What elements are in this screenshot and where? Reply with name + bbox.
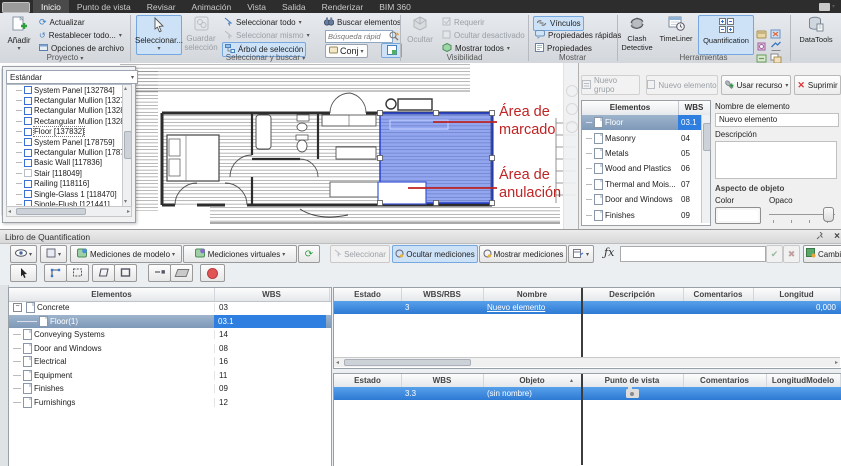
select-all-icon — [224, 17, 233, 28]
item-icon — [594, 133, 603, 144]
item-icon — [39, 316, 48, 327]
tree-row[interactable]: Finishes09 — [9, 382, 331, 396]
tree-row[interactable]: Electrical16 — [9, 355, 331, 369]
erase-markup-button[interactable] — [170, 264, 193, 282]
tree-row-concrete[interactable]: − Concrete 03 — [9, 301, 331, 315]
scrollbar-thumb[interactable] — [703, 123, 711, 151]
column-header-estado[interactable]: Estado — [334, 374, 402, 387]
delete-x-icon: ✕ — [797, 80, 805, 91]
box-icon — [46, 248, 56, 260]
geometry-icon — [24, 117, 32, 125]
select-same-button[interactable]: Seleccionar mismo▾ — [222, 29, 312, 41]
tree-item[interactable]: Single-Glass 1 [118470] — [7, 189, 131, 199]
opacity-slider-thumb[interactable] — [823, 207, 834, 222]
timeliner-button[interactable]: TimeLiner — [657, 15, 695, 53]
require-icon — [442, 17, 451, 28]
geometry-icon — [24, 190, 32, 198]
group-label-proyecto[interactable]: Proyecto ▾ — [0, 53, 130, 63]
sort-ascending-icon: ▴ — [570, 377, 573, 384]
tree-row-floor-selected[interactable]: Floor(1) 03.1 — [9, 315, 331, 329]
scrollbar-thumb[interactable] — [16, 208, 86, 215]
quick-find-input[interactable] — [325, 30, 393, 43]
chevron-down-icon: ▾ — [785, 82, 788, 89]
geometry-icon — [24, 138, 32, 146]
ribbon: Añadir ▾ ⟳ Actualizar ↺ Restablecer todo… — [0, 13, 841, 64]
resource-icon — [724, 79, 734, 91]
polygon-markup-button[interactable] — [66, 264, 89, 282]
change-analysis-icon — [806, 248, 816, 260]
model-takeoff-button[interactable]: Mediciones de modelo▾ — [70, 245, 182, 263]
link-icon — [536, 19, 547, 29]
workbook-tree-header: Elementos WBS — [9, 288, 331, 302]
x-icon: ✖ — [788, 249, 796, 260]
object-appearance-label: Aspecto de objeto — [715, 184, 784, 193]
cursor-icon — [19, 267, 28, 280]
unhide-all-icon — [442, 43, 452, 54]
horizontal-scrollbar[interactable]: ◂▸ — [6, 206, 132, 217]
new-group-button[interactable]: Nuevo grupo — [581, 75, 640, 95]
app-menu-button[interactable] — [2, 2, 30, 13]
hide-cube-icon — [412, 16, 428, 35]
tree-item[interactable]: System Panel [178759] — [7, 137, 131, 147]
datatools-button[interactable]: DataTools — [796, 15, 836, 53]
override-area — [378, 182, 426, 204]
tree-item[interactable]: Basic Wall [117836] — [7, 158, 131, 168]
item-icon — [23, 343, 32, 354]
quantification-icon — [718, 17, 735, 36]
nav-pan-icon[interactable] — [566, 103, 578, 115]
area-markup-icon — [120, 267, 131, 280]
geometry-icon — [24, 169, 32, 177]
polygon-icon — [72, 267, 83, 280]
items-grid-header: Estado WBS/RBS Nombre Descripción Coment… — [334, 288, 841, 302]
selection-tree-panel: Estándar▾ System Panel [132784] Rectangu… — [2, 66, 136, 223]
tree-item[interactable]: Rectangular Mullion [132803] — [7, 106, 131, 116]
refresh-icon: ⟳ — [39, 17, 47, 28]
items-grid: Estado WBS/RBS Nombre Descripción Coment… — [333, 287, 841, 369]
tab-bim360[interactable]: BIM 360 — [371, 0, 419, 13]
tab-revisar[interactable]: Revisar — [139, 0, 184, 13]
color-swatch[interactable] — [715, 207, 761, 224]
chevron-down-icon: ▾ — [299, 19, 302, 26]
item-icon — [594, 148, 603, 159]
column-header-estado[interactable]: Estado — [334, 288, 402, 301]
tree-item[interactable]: Railing [118116] — [7, 179, 131, 189]
reset-icon: ↺ — [39, 31, 46, 40]
pin-icon[interactable] — [816, 232, 824, 242]
group-separator — [790, 15, 791, 61]
catalog-row[interactable]: Wood and Plastics06 — [582, 161, 710, 176]
geometry-icon — [24, 107, 32, 115]
catalog-row[interactable]: Masonry04 — [582, 130, 710, 145]
timeliner-icon — [668, 16, 685, 34]
record-markup-button[interactable] — [200, 264, 225, 282]
tree-item[interactable]: Rectangular Mullion [132812] — [7, 116, 131, 126]
formula-label: ƒx — [604, 246, 614, 259]
catalog-row-selected[interactable]: Floor 03.1 — [582, 115, 710, 130]
collapse-icon[interactable]: − — [13, 303, 22, 312]
scroll-left-arrow[interactable]: ◂ — [336, 359, 339, 367]
area-markup-button[interactable] — [114, 264, 137, 282]
description-field[interactable] — [715, 141, 837, 179]
vertical-scrollbar[interactable] — [701, 115, 710, 223]
nav-orbit-icon[interactable] — [566, 85, 578, 97]
column-header-longitud[interactable]: Longitud — [753, 288, 841, 301]
catalog-table: Elementos WBS Floor 03.1 Masonry04 Metal… — [581, 100, 711, 226]
point-line-icon — [154, 268, 166, 278]
item-icon — [23, 356, 32, 367]
column-header-comentarios[interactable]: Comentarios — [683, 288, 754, 301]
geometry-icon — [24, 97, 32, 105]
steps-grid: Estado WBS Objeto ▴ Punto de vista Comen… — [333, 373, 841, 466]
geometry-icon — [24, 128, 32, 136]
group-label-herramientas[interactable]: Herramientas — [617, 53, 790, 63]
column-header-objeto[interactable]: Objeto — [483, 374, 582, 387]
geometry-icon — [24, 180, 32, 188]
scrollbar-thumb[interactable] — [124, 131, 132, 159]
file-options-icon — [39, 43, 48, 54]
item-icon — [23, 370, 32, 381]
workbook-title: Libro de Quantification — [5, 232, 90, 242]
window-icon — [819, 3, 830, 11]
selection-tree-mode-dropdown[interactable]: Estándar▾ — [6, 70, 138, 84]
require-button[interactable]: Requerir — [440, 16, 487, 28]
group-label-seleccionar-y-buscar[interactable]: Seleccionar y buscar ▾ — [131, 53, 400, 63]
tab-vista[interactable]: Vista — [239, 0, 274, 13]
scrollbar-thumb[interactable] — [344, 359, 471, 366]
horizontal-scrollbar[interactable]: ◂ ▸ — [334, 357, 840, 367]
item-icon — [594, 194, 603, 205]
column-header-wbs[interactable]: WBS — [401, 374, 484, 387]
tab-renderizar[interactable]: Renderizar — [314, 0, 372, 13]
quantification-workbook-panel: Libro de Quantification × ▾ ▾ Mediciones… — [0, 229, 841, 466]
group-label-mostrar[interactable]: Mostrar — [528, 53, 617, 63]
catalog-row[interactable]: Metals05 — [582, 146, 710, 161]
column-header-descripcion[interactable]: Descripción — [581, 288, 684, 301]
formula-input[interactable] — [620, 246, 766, 262]
select-same-icon — [224, 30, 233, 41]
add-button[interactable]: Añadir ▾ — [4, 15, 34, 53]
tab-inicio[interactable]: Inicio — [33, 0, 69, 13]
item-icon — [594, 163, 603, 174]
item-icon — [26, 302, 35, 313]
color-label: Color — [715, 196, 734, 205]
display-mode-dropdown-button[interactable]: ▾ — [40, 245, 67, 263]
tab-punto-de-vista[interactable]: Punto de vista — [69, 0, 139, 13]
record-icon — [207, 268, 218, 279]
select-markup-button[interactable] — [10, 264, 37, 282]
clash-detective-icon — [629, 16, 645, 34]
use-resource-button[interactable]: Usar recurso▾ — [721, 75, 791, 95]
takeoff-settings-dropdown[interactable]: ▾ — [568, 245, 594, 263]
add-file-icon — [11, 16, 27, 36]
select-takeoff-button[interactable]: Seleccionar — [330, 245, 390, 263]
polyline-icon — [50, 267, 61, 280]
column-header-comentarios[interactable]: Comentarios — [683, 374, 767, 387]
polyline-markup-button[interactable] — [44, 264, 67, 282]
quick-properties-icon — [535, 30, 545, 41]
save-selection-button[interactable]: Guardar selección — [184, 15, 218, 53]
tab-animacion[interactable]: Animación — [184, 0, 240, 13]
item-icon — [23, 329, 32, 340]
vertical-scrollbar[interactable]: ▴▾ — [122, 85, 131, 206]
quantification-button[interactable]: Quantification — [698, 15, 754, 55]
item-icon — [594, 179, 603, 190]
formula-cancel-button[interactable]: ✖ — [783, 245, 800, 263]
quick-line-markup-button[interactable] — [148, 264, 171, 282]
column-header-punto-de-vista[interactable]: Punto de vista — [581, 374, 684, 387]
column-header-wbs[interactable]: WBS — [678, 101, 709, 115]
rectangle-markup-button[interactable] — [92, 264, 115, 282]
frozen-pane-divider — [581, 288, 583, 366]
select-all-button[interactable]: Seleccionar todo▾ — [222, 16, 304, 28]
database-icon — [808, 16, 824, 35]
column-header-longitud-modelo[interactable]: LongitudModelo — [766, 374, 841, 387]
ribbon-tab-bar: Inicio Punto de vista Revisar Animación … — [0, 0, 841, 13]
hide-button[interactable]: Ocultar — [405, 15, 435, 53]
visibility-dropdown-button[interactable]: ▾ — [10, 245, 37, 263]
geometry-icon — [24, 159, 32, 167]
find-items-button[interactable]: Buscar elementos — [322, 16, 403, 28]
clash-detective-button[interactable]: Clash Detective — [620, 15, 654, 53]
column-header-nombre[interactable]: Nombre — [483, 288, 582, 301]
items-grid-selected-row[interactable]: 3 Nuevo elemento 0,000 — [334, 301, 841, 314]
virtual-takeoff-button[interactable]: Mediciones virtuales▾ — [183, 245, 297, 263]
tree-item[interactable]: System Panel [132784] — [7, 85, 131, 95]
quick-properties-button[interactable]: Propiedades rápidas — [533, 29, 623, 41]
ribbon-display-toggle[interactable]: ▾ — [819, 0, 841, 13]
column-header-elementos[interactable]: Elementos — [582, 101, 678, 115]
hide-takeoff-button[interactable]: Ocultar mediciones — [392, 245, 478, 263]
group-label-visibilidad[interactable]: Visibilidad — [401, 53, 528, 63]
chevron-down-icon: ▾ — [832, 3, 835, 10]
tab-salida[interactable]: Salida — [274, 0, 314, 13]
grid-settings-icon — [573, 249, 584, 260]
column-header-elementos[interactable]: Elementos — [9, 288, 215, 301]
description-label: Descripción — [715, 130, 757, 139]
item-icon — [594, 117, 603, 128]
tree-row[interactable]: Equipment11 — [9, 369, 331, 383]
chevron-down-icon: ▾ — [131, 74, 134, 81]
navisworks-window: Inicio Punto de vista Revisar Animación … — [0, 0, 841, 466]
selection-tree-list: System Panel [132784] Rectangular Mullio… — [6, 84, 132, 207]
hide-unselected-icon — [442, 30, 451, 41]
chevron-down-icon: ▾ — [119, 32, 122, 39]
model-takeoff-icon — [77, 248, 88, 260]
quantification-catalog-panel: Nuevo grupo Nuevo elemento Usar recurso▾… — [578, 63, 841, 229]
tree-row[interactable]: Door and Windows08 — [9, 342, 331, 356]
eye-icon — [15, 249, 27, 259]
show-takeoff-button[interactable]: Mostrar mediciones — [479, 245, 567, 263]
new-item-button[interactable]: Nuevo elemento — [646, 75, 718, 95]
tree-item[interactable]: Rectangular Mullion [178787] — [7, 147, 131, 157]
tree-item[interactable]: Rectangular Mullion [132798] — [7, 95, 131, 105]
tree-row[interactable]: Furnishings12 — [9, 396, 331, 410]
camera-icon — [626, 389, 639, 398]
column-header-wbs-rbs[interactable]: WBS/RBS — [401, 288, 484, 301]
item-name-field[interactable]: Nuevo elemento — [715, 113, 839, 127]
properties-icon — [535, 43, 544, 54]
tree-item-selected[interactable]: Floor [137832] — [7, 127, 131, 137]
new-item-icon — [647, 80, 655, 91]
formula-accept-button[interactable]: ✔ — [766, 245, 783, 263]
catalog-row[interactable]: Door and Windows08 — [582, 192, 710, 207]
check-icon: ✔ — [771, 249, 779, 260]
item-icon — [23, 397, 32, 408]
geometry-icon — [24, 149, 32, 157]
virtual-takeoff-icon — [195, 248, 206, 260]
hide-takeoff-icon — [395, 249, 404, 260]
tree-row[interactable]: Conveying Systems14 — [9, 328, 331, 342]
geometry-icon — [24, 86, 32, 94]
item-name-label: Nombre de elemento — [715, 102, 790, 111]
cursor-icon — [152, 17, 166, 36]
add-button-label: Añadir — [7, 37, 30, 46]
navigation-bar[interactable] — [563, 63, 578, 229]
column-header-wbs[interactable]: WBS — [214, 288, 330, 301]
frozen-pane-divider — [581, 374, 583, 465]
model-canvas[interactable]: Área de marcado Área de anulación Estánd… — [0, 63, 578, 229]
select-icon — [334, 249, 342, 259]
close-icon[interactable]: × — [834, 231, 840, 242]
binoculars-icon — [324, 17, 334, 28]
save-selection-icon — [194, 16, 209, 34]
rectangle-markup-icon — [98, 267, 109, 280]
reset-all-button[interactable]: ↺ Restablecer todo...▾ — [37, 29, 124, 41]
refresh-button[interactable]: ⟳ Actualizar — [37, 16, 87, 28]
chevron-down-icon: ▾ — [507, 45, 510, 52]
delete-button[interactable]: ✕ Suprimir — [794, 75, 841, 95]
item-icon — [23, 383, 32, 394]
steps-grid-selected-row[interactable]: 3.3 (sin nombre) — [334, 387, 841, 400]
steps-grid-header: Estado WBS Objeto ▴ Punto de vista Comen… — [334, 374, 841, 388]
opacity-label: Opaco — [769, 196, 793, 205]
refresh-icon: ⟳ — [305, 249, 313, 260]
update-takeoff-button[interactable]: ⟳ — [298, 245, 320, 263]
show-takeoff-icon — [483, 249, 492, 260]
scroll-right-arrow[interactable]: ▸ — [835, 359, 838, 367]
tree-item-hidden[interactable]: Stair [118049] — [7, 168, 131, 178]
select-button[interactable]: Seleccionar... ▾ — [136, 15, 182, 55]
change-analysis-button[interactable]: Cambiar análisis — [803, 245, 841, 263]
hide-unselected-button[interactable]: Ocultar desactivado — [440, 29, 527, 41]
workbook-title-bar[interactable]: Libro de Quantification × — [0, 230, 841, 244]
catalog-row[interactable]: Thermal and Mois...07 — [582, 177, 710, 192]
catalog-table-header: Elementos WBS — [582, 101, 710, 116]
viewpoint-cell[interactable] — [581, 387, 683, 400]
item-name-link[interactable]: Nuevo elemento — [483, 301, 583, 314]
catalog-row[interactable]: Finishes09 — [582, 207, 710, 222]
workbook-tree: Elementos WBS − Concrete 03 Floor(1) 03.… — [8, 287, 332, 466]
item-icon — [594, 210, 603, 221]
chevron-down-icon: ▾ — [307, 32, 310, 39]
main-area: Área de marcado Área de anulación Estánd… — [0, 63, 841, 229]
eraser-icon — [174, 269, 189, 277]
new-group-icon — [582, 80, 591, 91]
nav-zoom-icon[interactable] — [566, 121, 578, 133]
